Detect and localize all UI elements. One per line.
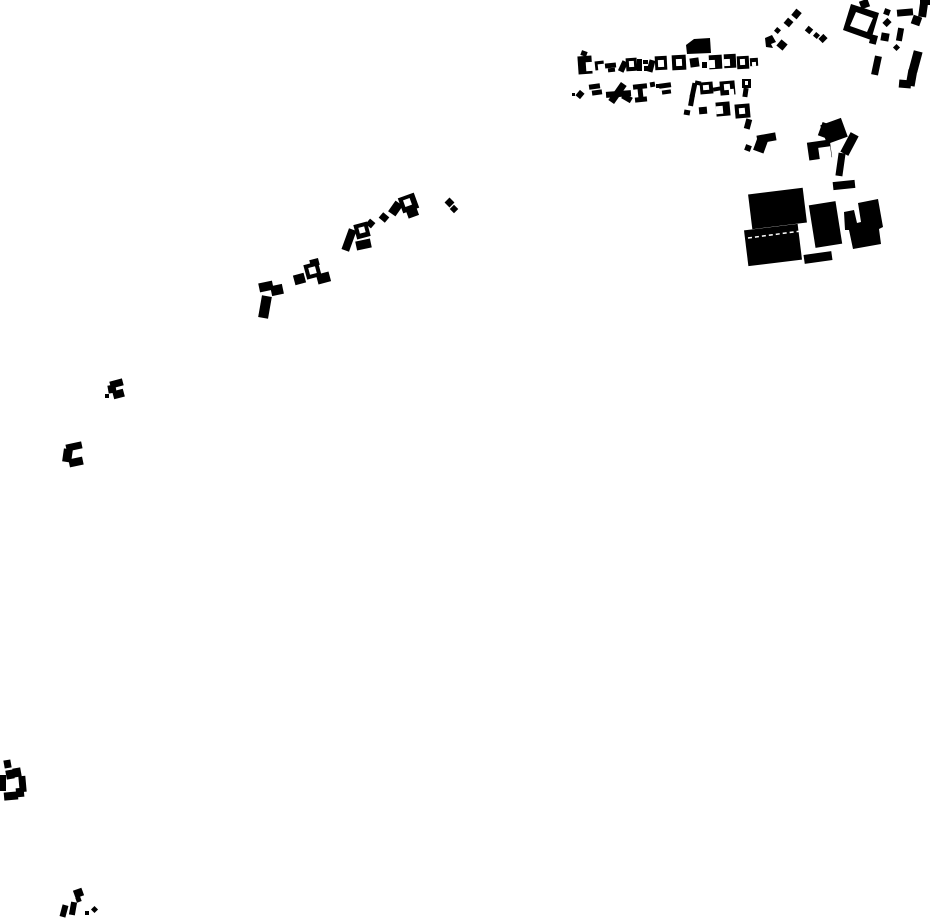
building-footprint bbox=[920, 0, 930, 5]
building-footprint bbox=[702, 62, 707, 68]
building-courtyard-hole bbox=[724, 59, 730, 66]
map-background bbox=[0, 0, 930, 924]
building-footprint bbox=[0, 775, 6, 791]
building-footprint bbox=[4, 791, 19, 800]
building-footprint bbox=[684, 110, 691, 116]
building-courtyard-hole bbox=[586, 62, 595, 72]
figure-ground-map bbox=[0, 0, 930, 924]
building-courtyard-hole bbox=[739, 108, 746, 115]
building-courtyard-hole bbox=[729, 89, 735, 95]
building-footprints-layer bbox=[0, 0, 930, 924]
building-courtyard-hole bbox=[716, 106, 724, 115]
building-courtyard-hole bbox=[676, 59, 682, 66]
building-footprint bbox=[637, 59, 642, 71]
building-footprint bbox=[572, 93, 575, 96]
building-courtyard-hole bbox=[703, 85, 709, 91]
building-courtyard-hole bbox=[752, 62, 756, 66]
building-footprint bbox=[748, 188, 807, 229]
building-footprint bbox=[12, 767, 21, 777]
building-footprint bbox=[689, 57, 699, 67]
building-courtyard-hole bbox=[629, 61, 634, 67]
building-footprint bbox=[85, 911, 89, 915]
building-courtyard-hole bbox=[740, 59, 745, 65]
building-footprint bbox=[699, 107, 708, 115]
building-footprint bbox=[3, 759, 11, 768]
building-footprint bbox=[744, 224, 802, 266]
building-courtyard-hole bbox=[598, 64, 606, 72]
building-footprint bbox=[608, 68, 615, 73]
building-footprint bbox=[880, 32, 889, 41]
building-footprint bbox=[643, 60, 648, 64]
building-courtyard-hole bbox=[818, 146, 832, 160]
building-courtyard-hole bbox=[658, 60, 664, 67]
building-footprint bbox=[105, 394, 109, 398]
building-courtyard-hole bbox=[745, 81, 748, 85]
building-footprint bbox=[899, 79, 912, 88]
building-footprint bbox=[650, 82, 656, 88]
building-footprint bbox=[897, 8, 914, 16]
building-courtyard-hole bbox=[709, 60, 715, 68]
